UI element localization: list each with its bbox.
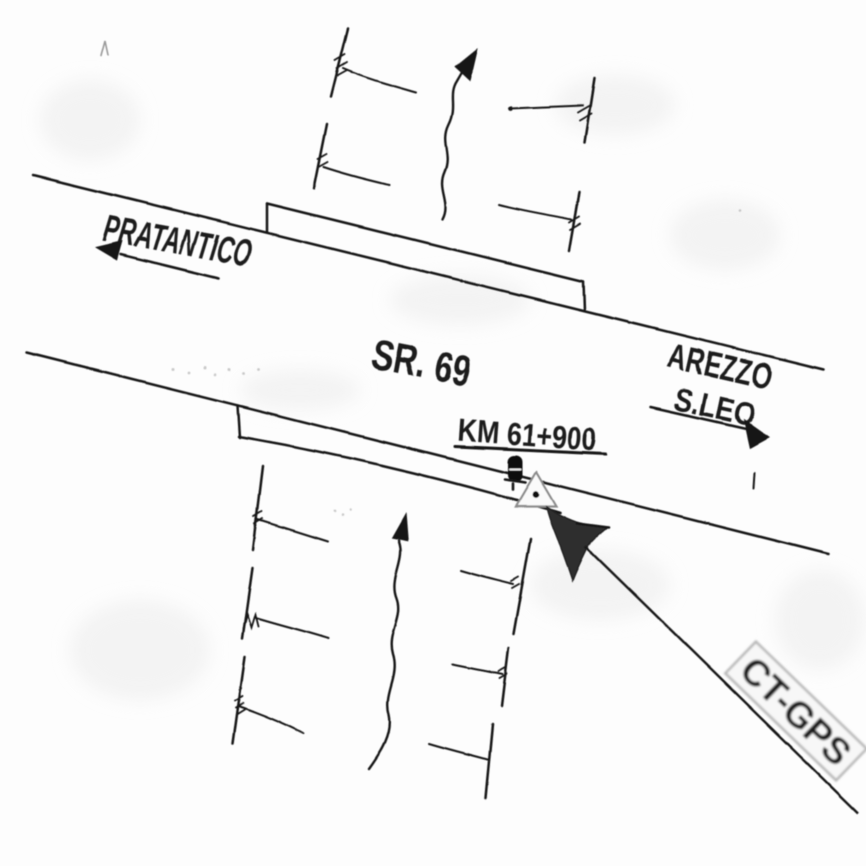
svg-text:PRATANTICO: PRATANTICO bbox=[99, 208, 254, 275]
svg-text:SR. 69: SR. 69 bbox=[367, 330, 474, 396]
svg-text:CT-GPS: CT-GPS bbox=[732, 649, 859, 774]
